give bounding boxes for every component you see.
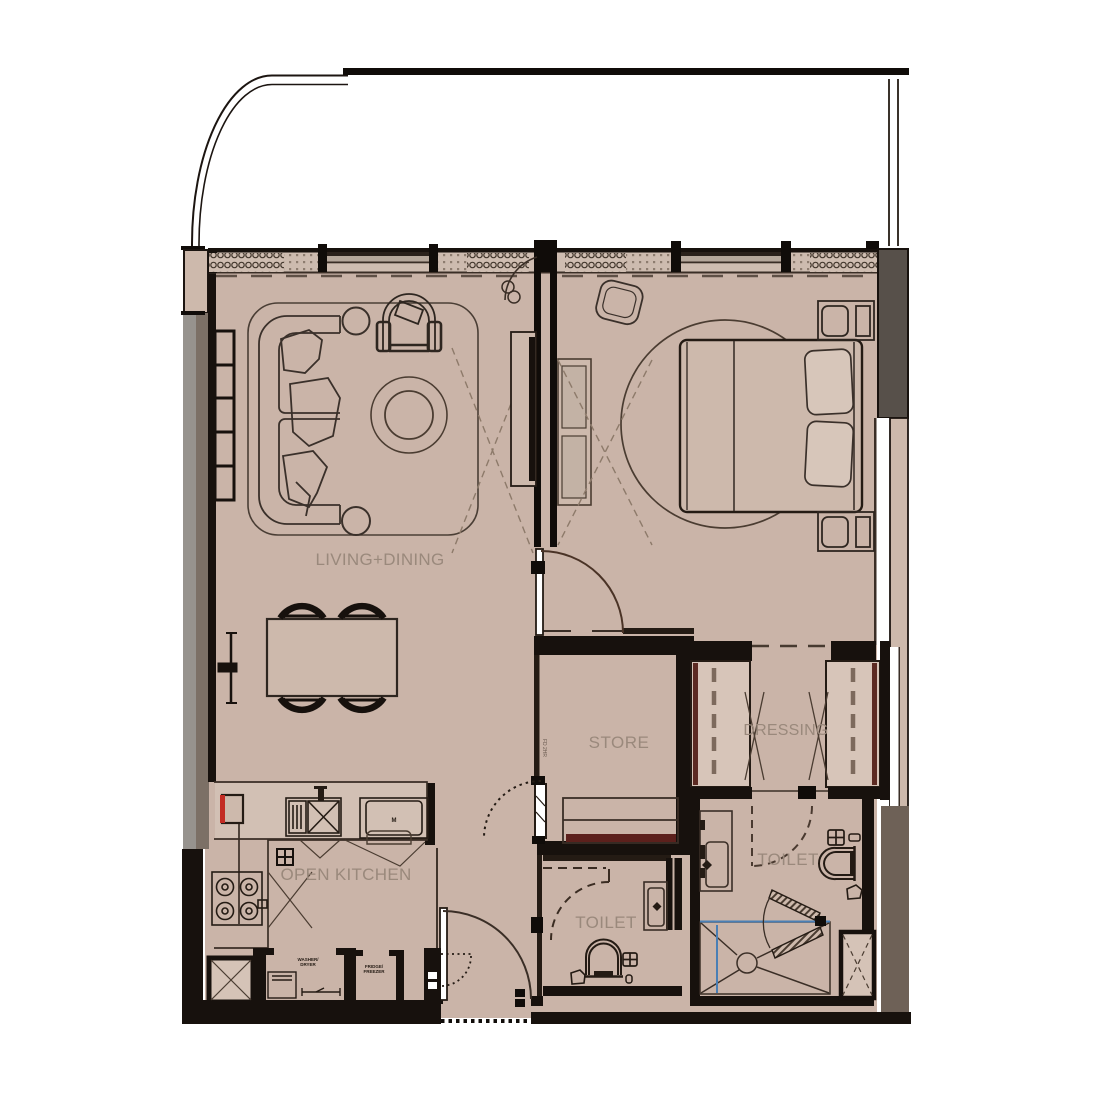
svg-text:FRIDGE/: FRIDGE/: [365, 964, 384, 969]
svg-text:WASHER/: WASHER/: [297, 957, 319, 962]
svg-text:M: M: [392, 818, 397, 824]
svg-text:FREEZER: FREEZER: [363, 969, 385, 974]
svg-text:DRESSING: DRESSING: [743, 722, 828, 739]
svg-text:OPEN KITCHEN: OPEN KITCHEN: [280, 865, 411, 884]
svg-text:TOILET: TOILET: [757, 850, 819, 869]
svg-text:LIVING+DINING: LIVING+DINING: [315, 550, 444, 569]
svg-text:FD 2HR: FD 2HR: [541, 739, 547, 757]
svg-text:DRYER: DRYER: [300, 962, 316, 967]
svg-text:STORE: STORE: [589, 733, 650, 752]
svg-text:TOILET: TOILET: [575, 913, 637, 932]
